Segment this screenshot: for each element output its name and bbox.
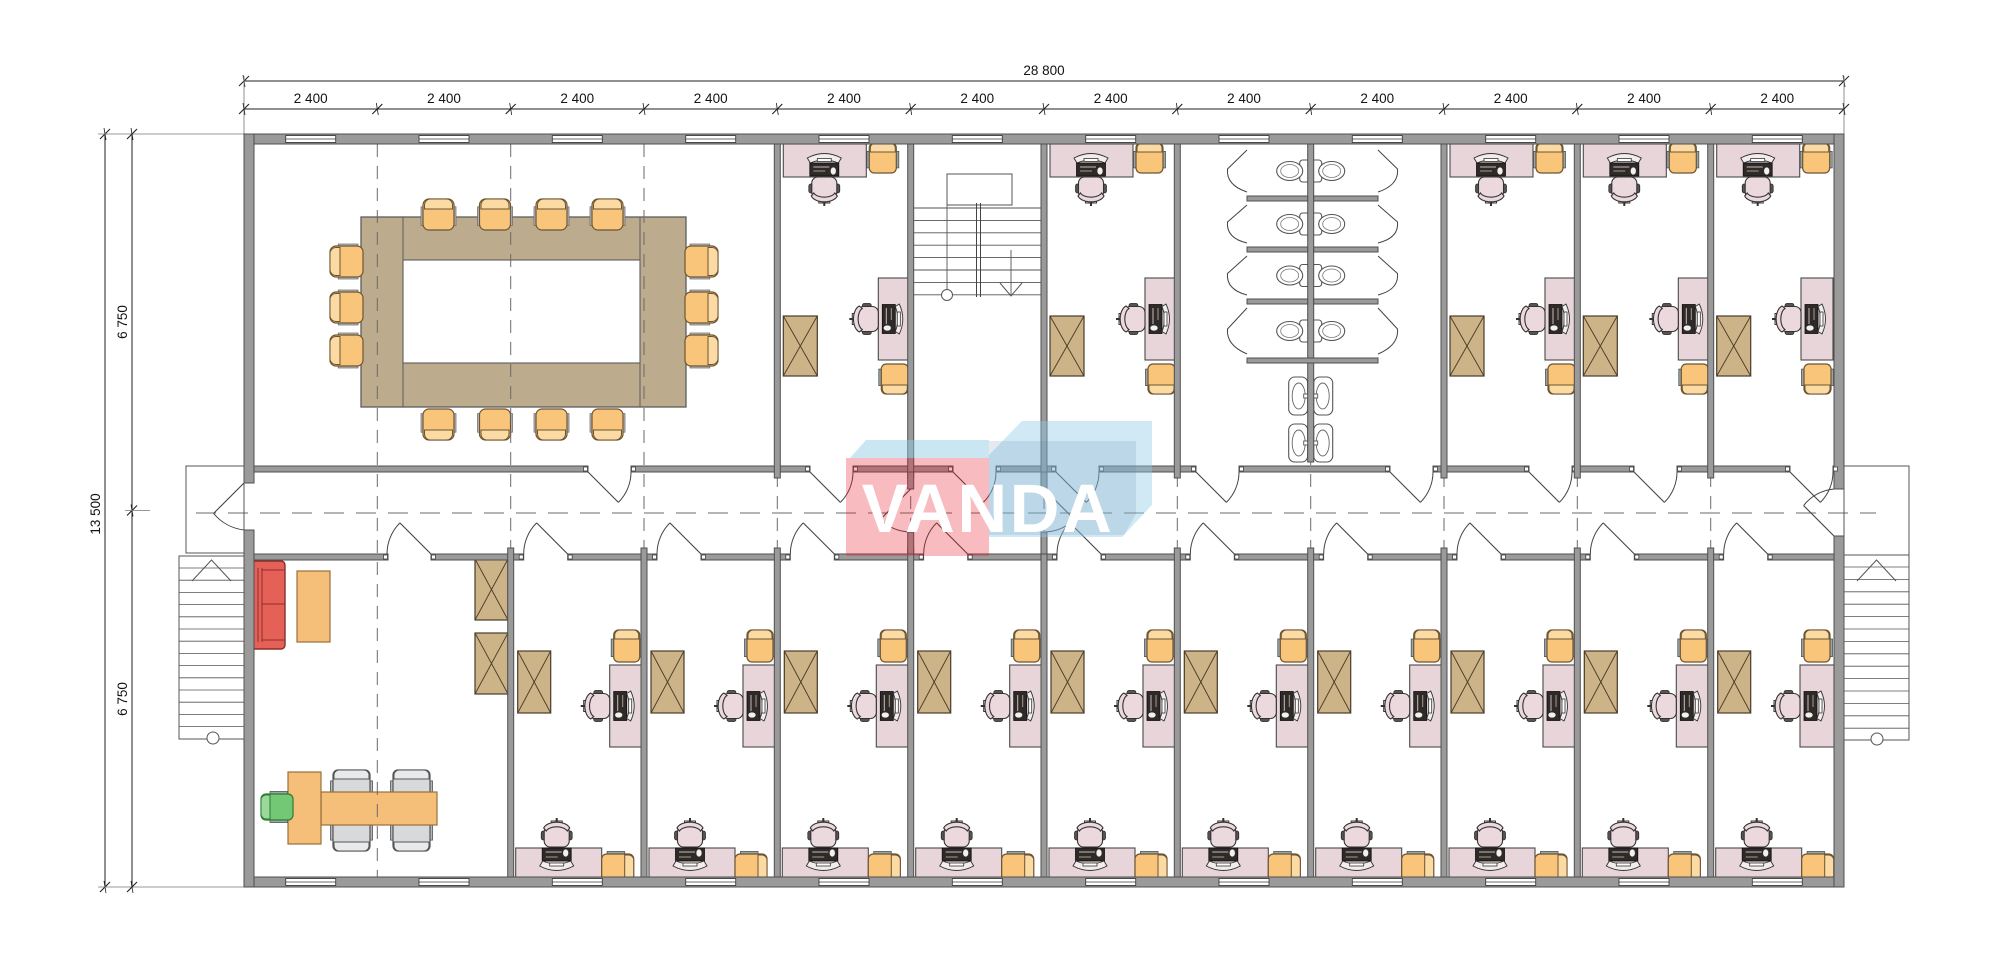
- svg-text:2 400: 2 400: [1627, 91, 1661, 106]
- svg-text:13 500: 13 500: [88, 493, 103, 534]
- svg-text:6 750: 6 750: [115, 682, 130, 716]
- svg-text:2 400: 2 400: [294, 91, 328, 106]
- svg-text:28 800: 28 800: [1023, 63, 1064, 78]
- svg-text:2 400: 2 400: [1360, 91, 1394, 106]
- svg-text:2 400: 2 400: [560, 91, 594, 106]
- svg-text:2 400: 2 400: [1494, 91, 1528, 106]
- svg-text:2 400: 2 400: [427, 91, 461, 106]
- svg-text:2 400: 2 400: [1094, 91, 1128, 106]
- svg-text:2 400: 2 400: [1227, 91, 1261, 106]
- svg-text:2 400: 2 400: [1760, 91, 1794, 106]
- svg-text:2 400: 2 400: [960, 91, 994, 106]
- svg-text:2 400: 2 400: [694, 91, 728, 106]
- svg-text:6 750: 6 750: [115, 305, 130, 339]
- svg-text:VANDA: VANDA: [862, 470, 1115, 547]
- svg-text:2 400: 2 400: [827, 91, 861, 106]
